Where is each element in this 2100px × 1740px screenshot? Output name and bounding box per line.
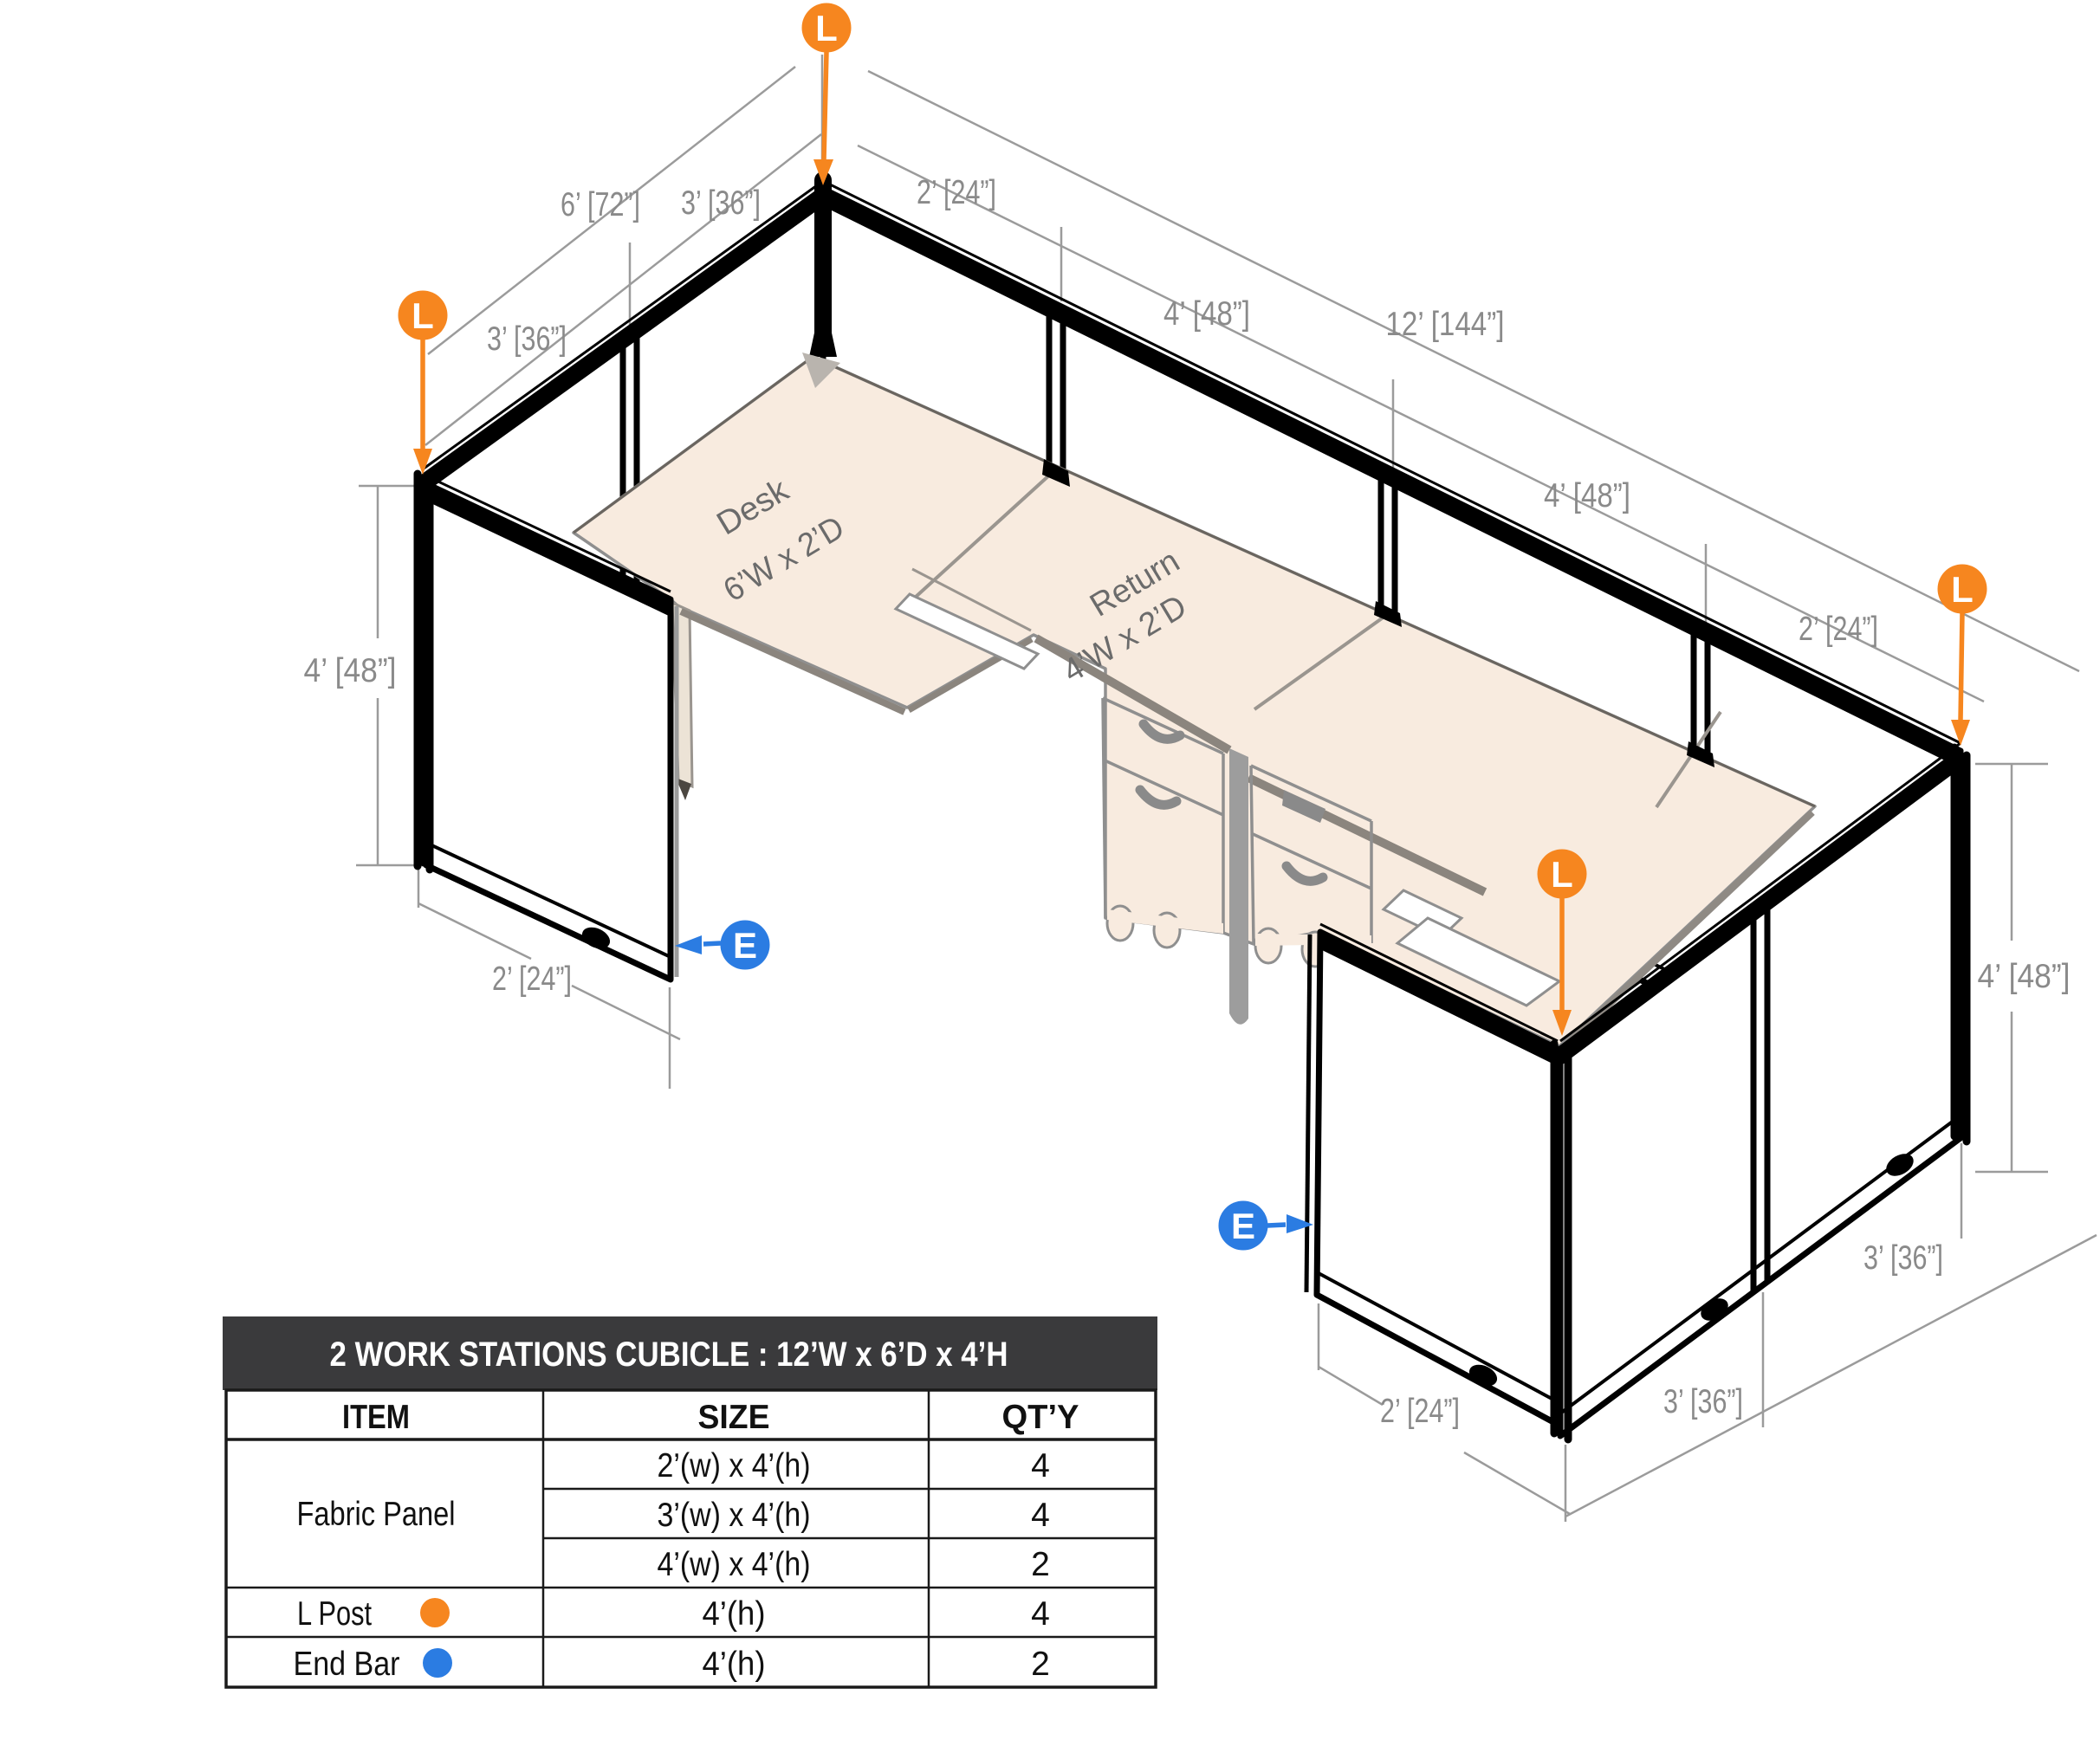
svg-text:3’ [36”]: 3’ [36”] (1863, 1239, 1943, 1277)
svg-text:L: L (412, 295, 434, 336)
svg-text:3’(w) x 4’(h): 3’(w) x 4’(h) (658, 1497, 811, 1534)
svg-text:2’(w) x 4’(h): 2’(w) x 4’(h) (658, 1447, 811, 1484)
svg-text:4: 4 (1031, 1447, 1050, 1484)
svg-text:4’(h): 4’(h) (703, 1646, 766, 1683)
svg-text:4’(h): 4’(h) (703, 1595, 766, 1633)
svg-text:E: E (1231, 1206, 1255, 1246)
svg-text:12’ [144”]: 12’ [144”] (1386, 306, 1505, 343)
svg-text:4’ [48”]: 4’ [48”] (304, 652, 397, 689)
svg-text:L: L (1551, 854, 1573, 895)
svg-text:3’ [36”]: 3’ [36”] (1663, 1383, 1743, 1420)
svg-text:L Post: L Post (297, 1595, 372, 1633)
svg-text:2’ [24”]: 2’ [24”] (1799, 611, 1878, 648)
svg-text:4’(w) x 4’(h): 4’(w) x 4’(h) (658, 1546, 811, 1583)
svg-text:2: 2 (1031, 1546, 1050, 1583)
svg-text:4: 4 (1031, 1595, 1050, 1633)
svg-text:End Bar: End Bar (294, 1646, 400, 1683)
svg-text:2 WORK STATIONS CUBICLE : 12: 2 WORK STATIONS CUBICLE : 12’W x 6’D x 4… (330, 1336, 1008, 1374)
svg-text:Fabric Panel: Fabric Panel (297, 1496, 456, 1533)
svg-text:4: 4 (1031, 1497, 1050, 1534)
svg-text:QT’Y: QT’Y (1002, 1399, 1079, 1436)
svg-text:4’ [48”]: 4’ [48”] (1163, 295, 1250, 333)
svg-text:2’ [24”]: 2’ [24”] (917, 174, 996, 211)
svg-text:6’ [72”]: 6’ [72”] (561, 186, 640, 223)
svg-text:3’ [36”]: 3’ [36”] (681, 184, 761, 222)
svg-text:4’ [48”]: 4’ [48”] (1978, 958, 2071, 995)
svg-text:L: L (1951, 569, 1974, 610)
svg-text:2: 2 (1031, 1646, 1050, 1683)
svg-text:ITEM: ITEM (342, 1399, 410, 1436)
svg-text:2’ [24”]: 2’ [24”] (492, 961, 572, 998)
svg-text:E: E (733, 925, 757, 966)
svg-text:L: L (815, 8, 838, 49)
svg-text:2’ [24”]: 2’ [24”] (1380, 1393, 1460, 1430)
svg-text:3’ [36”]: 3’ [36”] (487, 320, 567, 358)
svg-text:4’ [48”]: 4’ [48”] (1544, 477, 1630, 514)
svg-text:SIZE: SIZE (698, 1399, 770, 1436)
